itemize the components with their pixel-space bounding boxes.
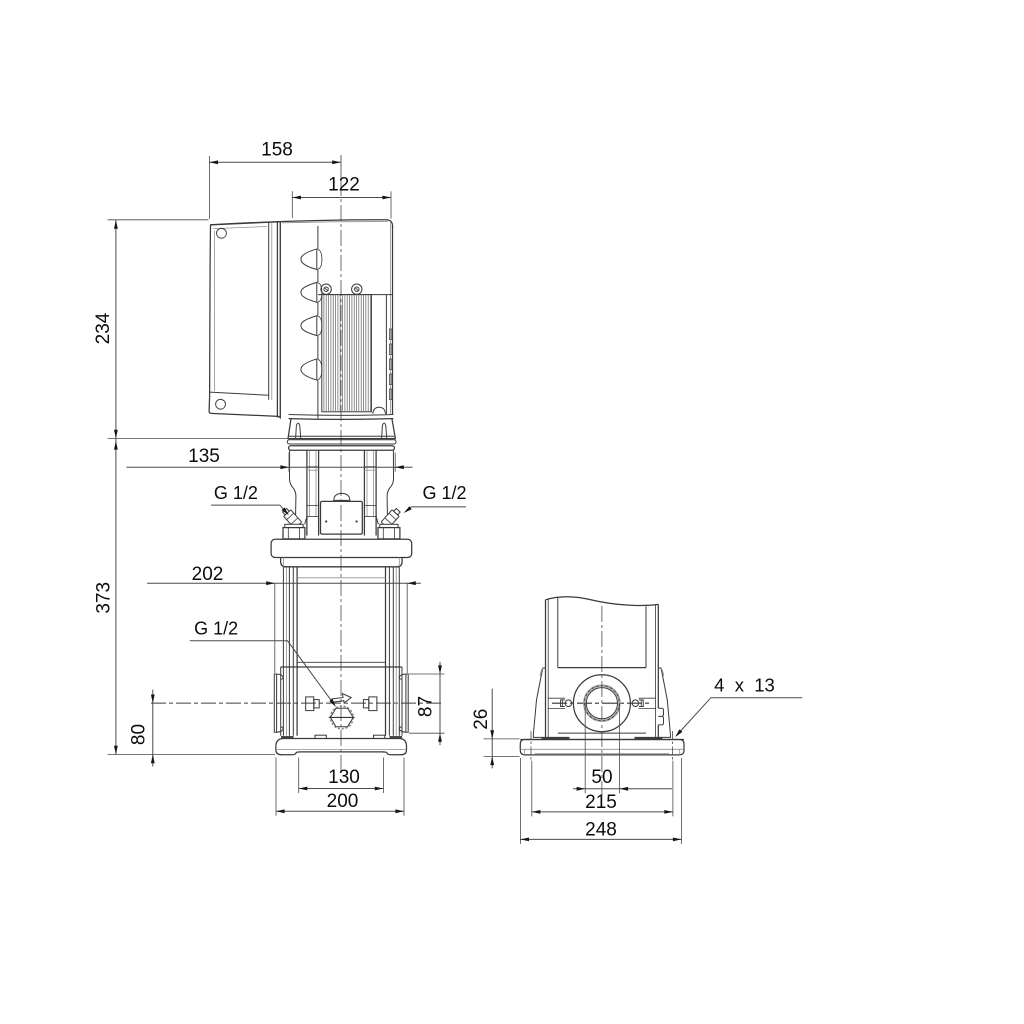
svg-text:234: 234	[93, 312, 114, 344]
svg-text:26: 26	[471, 709, 492, 730]
svg-text:87: 87	[415, 696, 436, 717]
svg-text:G 1/2: G 1/2	[214, 483, 258, 503]
svg-text:248: 248	[585, 820, 617, 841]
svg-text:135: 135	[188, 446, 220, 467]
svg-text:50: 50	[591, 767, 612, 788]
svg-text:215: 215	[585, 792, 617, 813]
svg-text:122: 122	[328, 175, 360, 196]
svg-text:373: 373	[93, 582, 114, 614]
svg-text:202: 202	[192, 564, 224, 585]
svg-text:80: 80	[128, 724, 149, 745]
svg-text:158: 158	[261, 140, 293, 161]
svg-text:G 1/2: G 1/2	[194, 618, 238, 638]
svg-text:200: 200	[327, 791, 359, 812]
svg-text:4 x 13: 4 x 13	[714, 675, 775, 696]
svg-text:130: 130	[328, 767, 360, 788]
svg-text:G 1/2: G 1/2	[422, 483, 466, 503]
